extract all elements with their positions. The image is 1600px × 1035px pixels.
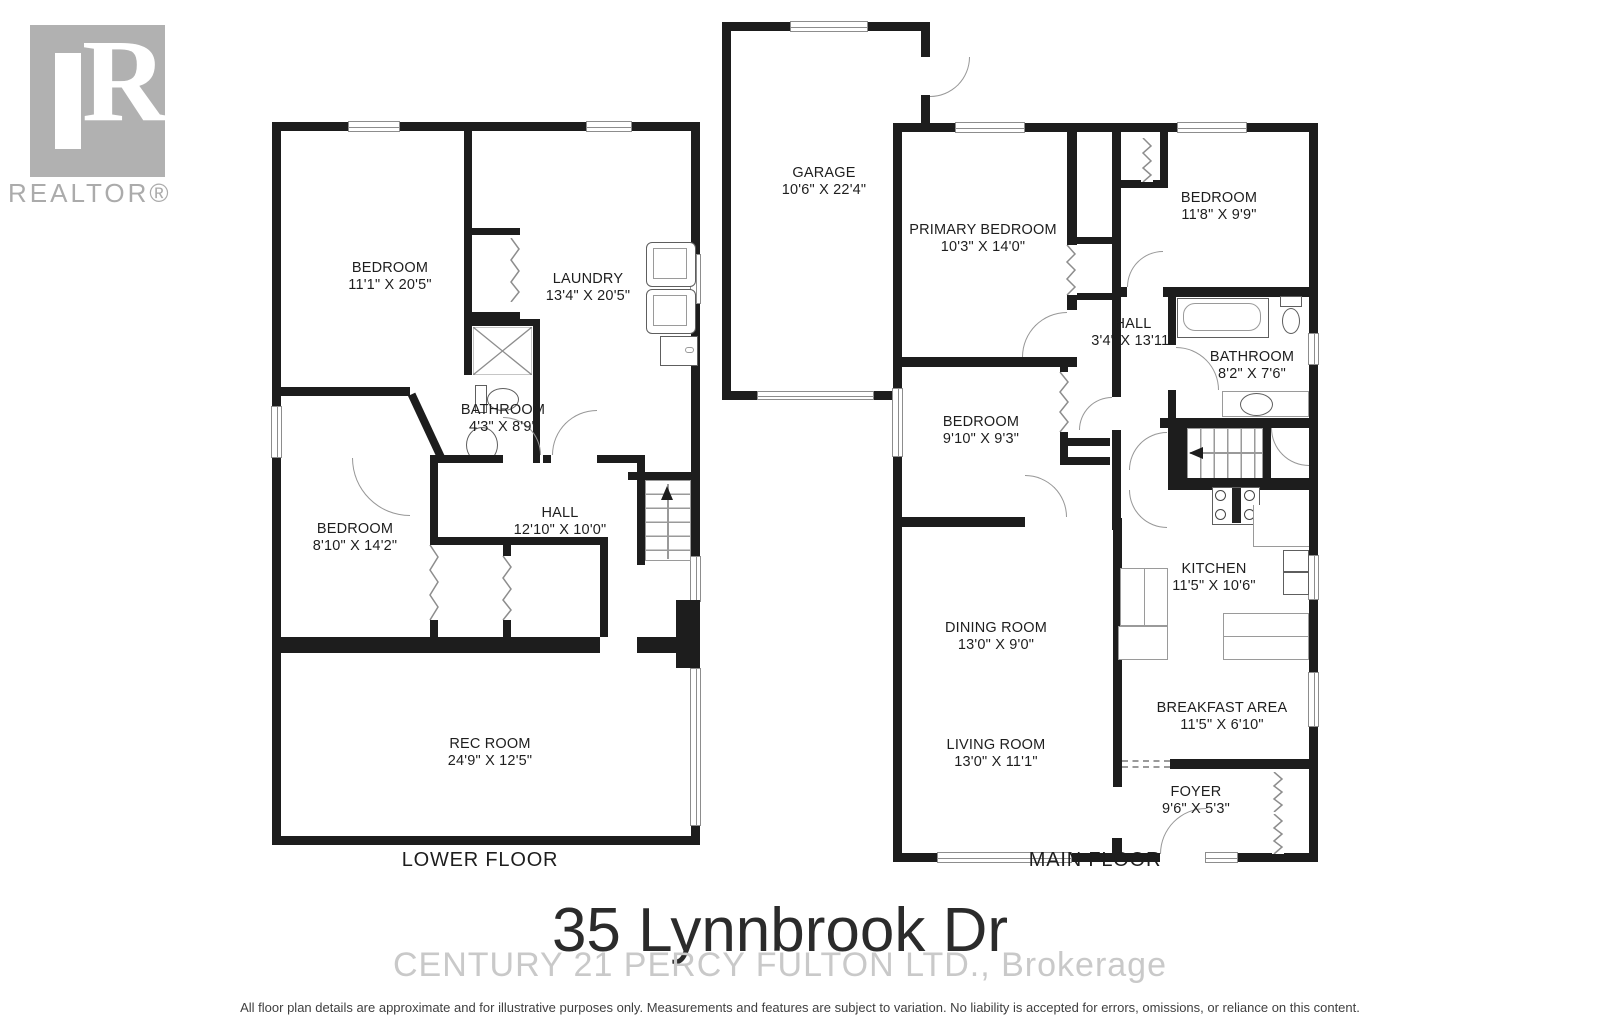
room-name: LAUNDRY (546, 271, 631, 288)
room-label-bedroom: BEDROOM 11'1" X 20'5" (348, 260, 431, 294)
fixture (653, 295, 687, 326)
room-name: HALL (1091, 316, 1174, 333)
wall (893, 357, 1077, 367)
wall (1168, 390, 1176, 418)
room-dims: 13'0" X 11'1" (947, 754, 1046, 771)
wall (464, 312, 520, 319)
wall (1112, 132, 1121, 397)
window (892, 388, 903, 457)
room-label-laundry: LAUNDRY 13'4" X 20'5" (546, 271, 631, 305)
fridge (1283, 550, 1309, 572)
wall (628, 472, 700, 480)
wall (1077, 293, 1112, 300)
wall (272, 836, 700, 845)
wall (464, 228, 520, 235)
window (690, 556, 701, 602)
realtor-logo: R (30, 25, 165, 177)
room-label-primary-bedroom: PRIMARY BEDROOM 10'3" X 14'0" (909, 222, 1057, 256)
wall (1309, 123, 1318, 333)
room-dims: 9'10" X 9'3" (943, 431, 1019, 448)
wall (1112, 430, 1121, 530)
room-label-foyer: FOYER 9'6" X 5'3" (1162, 784, 1230, 818)
room-dims: 24'9" X 12'5" (448, 753, 533, 770)
bifold-closet-door (1065, 245, 1077, 295)
room-label-bathroom: BATHROOM 8'2" X 7'6" (1210, 349, 1294, 383)
fixture (1183, 303, 1261, 331)
room-name: DINING ROOM (945, 620, 1047, 637)
room-dims: 8'10" X 14'2" (313, 538, 398, 555)
wall (676, 600, 700, 668)
room-dims: 9'6" X 5'3" (1162, 801, 1230, 818)
room-name: HALL (514, 505, 607, 522)
garage-door (757, 391, 874, 400)
wall (408, 393, 445, 461)
room-label-hall: HALL 3'4" X 13'11" (1091, 316, 1174, 350)
bathtub (1177, 298, 1269, 338)
kitchen-counter (1253, 505, 1309, 547)
room-dims: 10'3" X 14'0" (909, 239, 1057, 256)
room-label-bedroom3: BEDROOM 11'8" X 9'9" (1181, 190, 1257, 224)
room-dims: 4'3" X 8'9" (461, 419, 545, 436)
wall (1309, 600, 1318, 672)
room-label-garage: GARAGE 10'6" X 22'4" (782, 165, 867, 199)
room-name: FOYER (1162, 784, 1230, 801)
room-name: BATHROOM (1210, 349, 1294, 366)
door-arc (1127, 251, 1163, 287)
wall (637, 637, 700, 653)
room-dims: 13'0" X 9'0" (945, 637, 1047, 654)
room-label-bedroom2: BEDROOM 8'10" X 14'2" (313, 521, 398, 555)
window (1205, 852, 1238, 863)
room-name: GARAGE (782, 165, 867, 182)
opening-dashed (1122, 766, 1170, 771)
room-label-rec-room: REC ROOM 24'9" X 12'5" (448, 736, 533, 770)
door-arc (930, 57, 970, 97)
disclaimer-text: All floor plan details are approximate a… (0, 1000, 1600, 1015)
washer (646, 242, 696, 287)
realtor-logo-bar (55, 53, 81, 149)
lower-floor-label: LOWER FLOOR (402, 849, 559, 872)
room-name: BREAKFAST AREA (1157, 700, 1288, 717)
room-name: BEDROOM (943, 414, 1019, 431)
room-name: LIVING ROOM (947, 737, 1046, 754)
room-dims: 11'5" X 6'10" (1157, 717, 1288, 734)
wall (272, 637, 600, 653)
shower (473, 327, 532, 375)
wall (1077, 237, 1112, 244)
wall (893, 517, 1025, 527)
window (955, 122, 1025, 133)
kitchen-counter (1223, 613, 1309, 660)
wall (722, 22, 731, 400)
window (348, 121, 400, 132)
realtor-logo-r: R (82, 13, 167, 149)
plan-mark (1144, 569, 1145, 625)
room-dims: 11'8" X 9'9" (1181, 207, 1257, 224)
wall (600, 537, 608, 637)
wall (1309, 727, 1318, 853)
room-name: REC ROOM (448, 736, 533, 753)
bifold-closet-door (1272, 772, 1284, 812)
wall (1060, 438, 1110, 446)
wall (921, 22, 930, 57)
window (690, 668, 701, 826)
fixture (1215, 509, 1226, 520)
wall (1060, 457, 1110, 465)
bifold-closet-door (501, 556, 513, 620)
wall (1170, 759, 1318, 769)
room-dims: 3'4" X 13'11" (1091, 333, 1174, 350)
room-label-living-room: LIVING ROOM 13'0" X 11'1" (947, 737, 1046, 771)
door-arc (1025, 475, 1067, 517)
door-arc (1129, 490, 1167, 528)
wall (1309, 365, 1318, 555)
room-name: KITCHEN (1172, 561, 1255, 578)
dining-chair (1118, 626, 1168, 660)
bifold-closet-door (1272, 814, 1284, 854)
room-dims: 10'6" X 22'4" (782, 182, 867, 199)
room-name: BEDROOM (1181, 190, 1257, 207)
bifold-closet-door (428, 545, 440, 620)
room-dims: 11'1" X 20'5" (348, 277, 431, 294)
wall (272, 122, 700, 131)
door-arc (552, 410, 597, 455)
wall (691, 122, 700, 254)
window (790, 21, 868, 32)
brokerage-watermark: CENTURY 21 PERCY FULTON LTD., Brokerage (0, 946, 1560, 985)
door-arc (352, 458, 410, 516)
room-label-breakfast-area: BREAKFAST AREA 11'5" X 6'10" (1157, 700, 1288, 734)
bathroom-sink (1240, 393, 1273, 416)
door-arc (1271, 428, 1309, 466)
stairs-up-arrow (661, 486, 673, 500)
room-label-kitchen: KITCHEN 11'5" X 10'6" (1172, 561, 1255, 595)
plan-mark (1224, 636, 1308, 637)
bifold-closet-door (1058, 372, 1070, 432)
room-name: BEDROOM (313, 521, 398, 538)
room-name: BEDROOM (348, 260, 431, 277)
room-label-bathroom: BATHROOM 4'3" X 8'9" (461, 402, 545, 436)
door-arc (1022, 312, 1067, 357)
wall (722, 391, 757, 400)
wall (272, 122, 281, 406)
wall (543, 455, 551, 463)
wall (464, 122, 472, 375)
window (271, 406, 282, 458)
laundry-sink (660, 336, 698, 366)
wall (1067, 295, 1077, 310)
dining-table (1120, 568, 1168, 626)
room-name: PRIMARY BEDROOM (909, 222, 1057, 239)
door-arc (1129, 432, 1167, 470)
window (1308, 672, 1319, 727)
fixture (653, 248, 687, 279)
room-label-dining-room: DINING ROOM 13'0" X 9'0" (945, 620, 1047, 654)
fixture (1244, 490, 1255, 501)
room-label-bedroom4: BEDROOM 9'10" X 9'3" (943, 414, 1019, 448)
bifold-closet-door (509, 238, 521, 302)
fixture (685, 347, 694, 353)
main-floor-label: MAIN FLOOR (1029, 849, 1161, 872)
dryer (646, 289, 696, 334)
window (1308, 555, 1319, 600)
fridge (1283, 572, 1309, 595)
opening-dashed (1122, 760, 1170, 765)
window (1308, 333, 1319, 365)
window (586, 121, 632, 132)
room-dims: 11'5" X 10'6" (1172, 578, 1255, 595)
wall (893, 853, 937, 862)
wall (893, 123, 902, 388)
door-arc (1079, 397, 1112, 430)
wall (464, 319, 540, 326)
wall (430, 460, 438, 545)
wall (1238, 853, 1318, 862)
room-dims: 13'4" X 20'5" (546, 288, 631, 305)
room-dims: 12'10" X 10'0" (514, 522, 607, 539)
wall (1067, 132, 1077, 245)
toilet-bowl (1282, 308, 1300, 334)
fixture (1215, 490, 1226, 501)
bifold-closet-door (1141, 138, 1153, 182)
toilet-tank (1280, 296, 1302, 307)
room-dims: 8'2" X 7'6" (1210, 366, 1294, 383)
room-label-hall: HALL 12'10" X 10'0" (514, 505, 607, 539)
realtor-wordmark: REALTOR® (8, 178, 188, 209)
wall (1263, 418, 1271, 478)
wall (1160, 132, 1168, 188)
wall (430, 620, 438, 637)
window (1177, 122, 1247, 133)
room-name: BATHROOM (461, 402, 545, 419)
wall (1119, 287, 1127, 297)
wall (272, 387, 410, 396)
stairs-down-arrow (1189, 447, 1203, 459)
